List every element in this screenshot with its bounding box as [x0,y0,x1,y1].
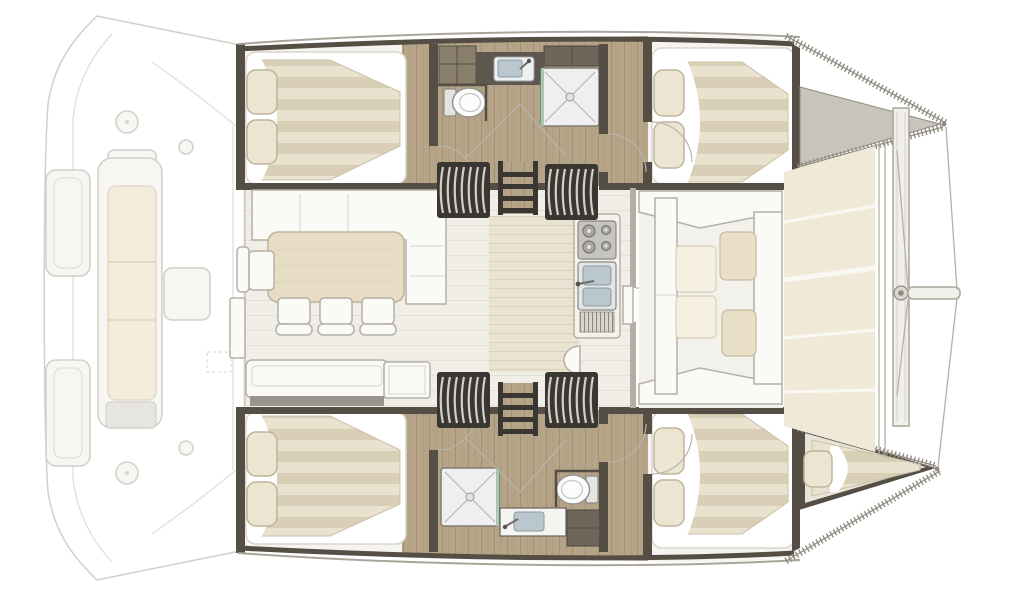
stern-outline [44,16,97,580]
aft-bench-base [250,396,384,406]
pillow [804,451,832,487]
port-sheer-faded [97,16,240,45]
stove [578,221,616,259]
forward-cockpit [639,190,783,408]
stbd-fwd-berth [652,412,794,548]
ladder-starboard [498,382,538,436]
chair [362,298,394,324]
catamaran-floor-plan [0,0,1024,597]
corridor-cabin-wall [643,38,652,122]
seat-cushion [676,296,716,338]
side-chair [249,251,274,290]
washbasin [514,512,544,531]
bow-fitting [935,467,940,472]
cabinet [384,362,430,398]
aft-bulkhead [236,409,245,553]
pillow [654,122,684,168]
saloon-walkway [489,216,579,372]
saloon-aft-door [230,298,245,358]
shower [441,468,499,526]
bow-fitting [942,122,947,127]
pillow [654,70,684,116]
fwd-cockpit-table [655,198,677,394]
transom-platform-starboard [46,360,90,466]
ladder-port [498,161,538,215]
dining-table [268,232,404,302]
seat-cushion [676,246,716,292]
transom-platform-port [46,170,90,276]
winch [179,441,193,455]
bathroom-corridor-wall [599,44,608,134]
cockpit-bench-base [106,402,156,428]
seat-cushion [720,232,756,280]
bathroom-corridor-wall [599,462,608,552]
port-aft-berth [246,52,406,184]
bowsprit [908,287,960,299]
floor-plan-drawing [0,0,1024,597]
stbd-aft-berth [246,412,406,544]
saloon-side-wall [236,407,437,414]
saloon-side-wall [236,183,437,190]
forestay-line [938,298,957,467]
aft-cockpit-faded [44,16,240,580]
cabin-bathroom-wall [429,44,438,146]
stairs-stbd-fwd [545,372,598,428]
cockpit-table [164,268,210,320]
trampoline [784,146,875,452]
stairs-stbd-aft [437,372,490,428]
pillow [654,428,684,474]
forestay-line [946,127,957,290]
saloon-front-door [623,286,633,324]
vent-grill [580,312,614,332]
stairs-port-aft [437,162,490,218]
corridor-cabin-wall [643,474,652,558]
toilet [557,475,599,504]
pillow [247,482,277,526]
side-chair-back [237,247,249,292]
port-fwd-berth [652,48,794,184]
winch [179,140,193,154]
toilet [444,88,486,117]
saloon-front-wall [630,322,636,408]
starboard-sheer-faded [97,551,240,580]
bow-bulkhead [792,410,800,552]
cockpit-bench-cushion [108,186,156,400]
pillow [247,70,277,114]
stairs-port-fwd [545,164,598,220]
aft-bulkhead [236,44,245,188]
cabin-bathroom-wall [429,450,438,552]
chair [320,298,352,324]
chair [278,298,310,324]
coachroof-line-port [152,62,236,126]
seat-cushion [722,310,756,356]
locker-dashed [207,352,231,372]
pillow [654,480,684,526]
dining-chairs [276,298,396,335]
saloon-front-wall [630,188,636,288]
pillow [247,432,277,476]
trampoline-seam [784,390,875,392]
coachroof-line-starboard [152,470,236,534]
fwd-cockpit-bench-right [754,212,782,384]
pillow [247,120,277,164]
shower [541,68,599,126]
